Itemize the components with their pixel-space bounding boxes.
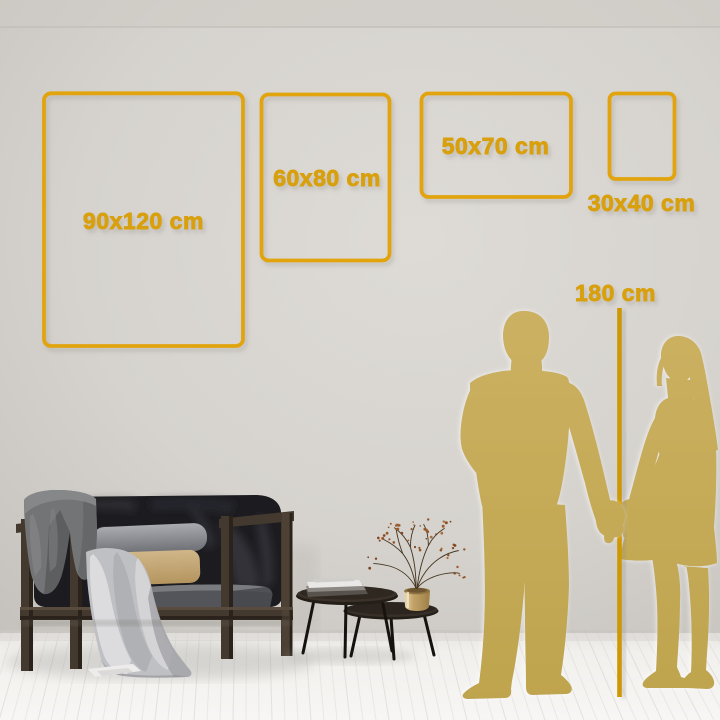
- svg-text:50x70 cm: 50x70 cm: [442, 133, 550, 159]
- svg-text:60x80 cm: 60x80 cm: [273, 165, 381, 191]
- svg-text:180 cm: 180 cm: [575, 280, 656, 306]
- svg-text:90x120 cm: 90x120 cm: [83, 208, 204, 234]
- svg-text:30x40 cm: 30x40 cm: [588, 190, 696, 216]
